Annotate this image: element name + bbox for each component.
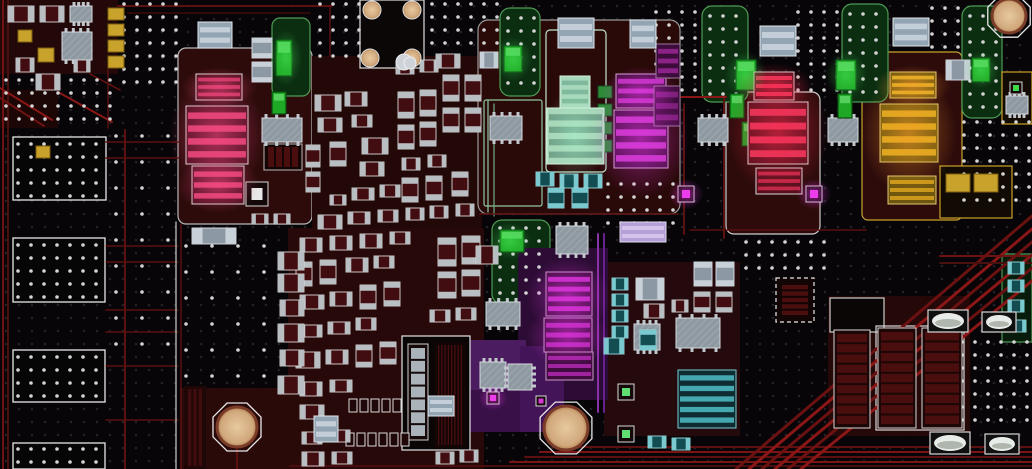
led-component[interactable] (1010, 82, 1022, 94)
via (56, 117, 60, 121)
chip-component[interactable] (380, 185, 400, 197)
hole-copper (217, 407, 257, 447)
chip-pad (274, 214, 278, 224)
via (658, 195, 662, 199)
chip-component[interactable] (330, 236, 352, 250)
chip-component[interactable] (356, 345, 372, 367)
via (809, 36, 813, 40)
via (140, 290, 144, 294)
teal-chip-component[interactable] (612, 294, 628, 306)
chip-component[interactable] (402, 158, 420, 170)
solder-pad (357, 433, 365, 446)
chip-component[interactable] (456, 308, 476, 320)
via (357, 28, 361, 32)
green-component[interactable] (272, 92, 286, 114)
via (986, 353, 990, 357)
via (968, 92, 972, 96)
chip-component[interactable] (74, 60, 90, 72)
led-component[interactable] (618, 384, 634, 400)
via (1014, 133, 1018, 137)
teal-chip-component[interactable] (548, 188, 564, 208)
pin-pad (461, 345, 462, 445)
chip-component[interactable] (462, 270, 480, 296)
chip-component[interactable] (378, 210, 398, 222)
via (809, 23, 813, 27)
pin-pad (925, 374, 959, 382)
chip-component[interactable] (278, 324, 304, 342)
solder-pad (371, 399, 379, 412)
via (443, 2, 447, 6)
teal-chip-component[interactable] (536, 172, 554, 186)
chip-component[interactable] (352, 188, 374, 200)
via (184, 270, 188, 274)
ic-component[interactable] (70, 2, 92, 26)
via (135, 41, 139, 45)
chip-component[interactable] (274, 214, 290, 224)
ic-component[interactable] (262, 114, 302, 146)
chip-pad (450, 452, 454, 464)
led-component[interactable] (536, 396, 546, 406)
chip-component[interactable] (348, 212, 370, 224)
chip-component[interactable] (362, 138, 388, 154)
via (135, 28, 139, 32)
via (680, 10, 684, 14)
chip-pad (328, 322, 333, 334)
inductor-component[interactable] (678, 370, 736, 428)
chip-pad (300, 405, 306, 419)
chip-pad (443, 126, 459, 132)
chip-pad (306, 145, 320, 150)
via (174, 67, 178, 71)
via (55, 155, 59, 159)
pin-pad (411, 425, 425, 436)
copper-pad[interactable] (363, 1, 381, 19)
via (210, 374, 214, 378)
via (1027, 120, 1031, 124)
chip-pad (300, 238, 305, 252)
chip-component[interactable] (302, 452, 324, 466)
chip-pad (474, 450, 478, 462)
pin-header-footprint[interactable] (184, 386, 206, 469)
chip-component[interactable] (320, 260, 336, 284)
via (29, 460, 33, 464)
pin-pad (881, 416, 913, 424)
chip-component[interactable] (330, 292, 352, 306)
via (236, 322, 240, 326)
ic-component[interactable] (556, 222, 588, 258)
via (55, 394, 59, 398)
chip-component[interactable] (318, 118, 342, 132)
test-point-pad[interactable] (928, 310, 968, 332)
via (708, 53, 712, 57)
solder-pad-yellow (18, 30, 32, 42)
ic-component[interactable] (504, 364, 536, 390)
chip-component[interactable] (428, 155, 446, 167)
via (357, 2, 361, 6)
chip-component[interactable] (426, 176, 442, 200)
pcb-layout-canvas[interactable] (0, 0, 1032, 469)
via (986, 392, 990, 396)
pin-pad (411, 348, 425, 359)
via (1014, 185, 1018, 189)
pin-header-footprint[interactable] (922, 328, 962, 428)
chip-pad (326, 350, 331, 364)
chip-pad (314, 352, 320, 368)
teal-chip-component[interactable] (612, 278, 628, 290)
via (184, 244, 188, 248)
chip-component[interactable] (438, 238, 456, 266)
via (30, 91, 34, 95)
chip-pad (389, 256, 394, 268)
via (114, 238, 118, 242)
chip-component[interactable] (330, 195, 346, 205)
chip-component[interactable] (452, 172, 468, 196)
inductor-component[interactable] (630, 20, 656, 48)
via (262, 322, 266, 326)
chip-component[interactable] (318, 215, 342, 229)
inductor-component[interactable] (198, 22, 232, 48)
chip-component[interactable] (332, 452, 352, 464)
chip-component[interactable] (278, 376, 304, 394)
via (184, 296, 188, 300)
copper-pad[interactable] (403, 1, 421, 19)
chip-component[interactable] (252, 214, 268, 224)
inductor-stripe (895, 24, 927, 30)
via (968, 14, 972, 18)
via (986, 405, 990, 409)
chip-pad (377, 234, 382, 248)
via (532, 42, 536, 46)
chip-pad (319, 452, 324, 466)
chip-component[interactable] (420, 90, 436, 116)
chip-component[interactable] (443, 108, 459, 132)
teal-chip-component[interactable] (672, 438, 690, 450)
led-component[interactable] (618, 426, 634, 442)
via (708, 92, 712, 96)
via (94, 394, 98, 398)
pin-pad (837, 365, 867, 373)
chip-component[interactable] (460, 450, 478, 462)
chip-pad (716, 262, 734, 268)
pin-header-footprint[interactable] (834, 330, 870, 428)
via (822, 49, 826, 53)
teal-chip-component[interactable] (572, 188, 588, 208)
solder-pad (379, 433, 387, 446)
chip-component[interactable] (280, 350, 304, 366)
via (667, 10, 671, 14)
pin-pad (411, 387, 425, 398)
pin-pad (881, 342, 913, 350)
chip-component[interactable] (306, 145, 320, 167)
via (1012, 418, 1016, 422)
chip-component[interactable] (315, 95, 341, 111)
via (140, 264, 144, 268)
chip-component[interactable] (306, 172, 320, 192)
chip-component[interactable] (278, 274, 304, 292)
chip-component[interactable] (345, 92, 367, 106)
chip-pad (1008, 300, 1012, 312)
inductor-stripe (680, 375, 734, 380)
led-die (622, 388, 630, 396)
via (537, 239, 541, 243)
inductor-stripe (560, 24, 592, 30)
glow-overlay (270, 30, 302, 86)
via (318, 54, 322, 58)
via (693, 49, 697, 53)
teal-chip-component[interactable] (648, 436, 666, 448)
mounting-hole[interactable] (540, 402, 592, 454)
chip-component[interactable] (356, 318, 376, 330)
via (236, 296, 240, 300)
copper-pad[interactable] (361, 49, 379, 67)
ic-hatch (70, 6, 92, 22)
chip-component[interactable] (420, 60, 438, 72)
test-point-pad[interactable] (982, 312, 1016, 332)
mounting-hole[interactable] (988, 0, 1030, 37)
chip-component[interactable] (694, 292, 710, 312)
via (981, 27, 985, 31)
chip-component[interactable] (328, 322, 350, 334)
via (822, 36, 826, 40)
pin-pad (925, 384, 959, 392)
chip-component[interactable] (374, 256, 394, 268)
via (210, 322, 214, 326)
teal-chip-component[interactable] (1008, 280, 1024, 292)
chip-component[interactable] (436, 54, 460, 68)
capacitor-component[interactable] (192, 228, 236, 244)
via (537, 252, 541, 256)
chip-component[interactable] (8, 6, 34, 22)
test-point-pad[interactable] (930, 432, 970, 454)
chip-pad (657, 278, 664, 300)
pin-header-footprint[interactable] (779, 281, 811, 319)
chip-component[interactable] (384, 282, 400, 306)
ic-component[interactable] (676, 314, 720, 352)
chip-component[interactable] (398, 125, 414, 149)
via (29, 381, 33, 385)
chip-component[interactable] (402, 178, 418, 202)
chip-component[interactable] (360, 162, 384, 176)
pin-header-footprint[interactable] (878, 328, 916, 428)
via (1027, 159, 1031, 163)
via (331, 2, 335, 6)
chip-component[interactable] (398, 92, 414, 118)
chip-pad (612, 278, 616, 290)
inductor-component[interactable] (893, 18, 929, 46)
inductor-stripe (316, 432, 336, 437)
chip-component[interactable] (456, 204, 474, 216)
via (822, 23, 826, 27)
chip-component[interactable] (430, 206, 448, 218)
via (498, 265, 502, 269)
test-point-pad[interactable] (985, 434, 1019, 454)
via (962, 133, 966, 137)
chip-pad (420, 140, 436, 146)
chip-pad (1022, 320, 1026, 332)
ic-component[interactable] (698, 114, 728, 146)
via (930, 32, 934, 36)
via (734, 27, 738, 31)
chip-component[interactable] (465, 108, 481, 132)
via (973, 353, 977, 357)
glow-overlay (181, 67, 258, 106)
chip-pad (378, 162, 384, 176)
capacitor-component[interactable] (716, 262, 734, 286)
teal-chip-component[interactable] (1008, 300, 1024, 312)
ic-component[interactable] (486, 298, 520, 330)
via (981, 105, 985, 109)
chip-component[interactable] (40, 6, 64, 22)
inductor-body (314, 416, 338, 442)
teal-chip-component[interactable] (1008, 262, 1024, 274)
via (161, 28, 165, 32)
pin-header-footprint[interactable] (408, 344, 428, 440)
ic-component[interactable] (490, 112, 522, 144)
chip-component[interactable] (16, 58, 34, 72)
chip-pad (636, 278, 643, 300)
teal-chip-component[interactable] (640, 330, 656, 350)
chip-component[interactable] (406, 208, 424, 220)
via (956, 6, 960, 10)
capacitor-component[interactable] (252, 62, 272, 82)
chip-component[interactable] (465, 75, 481, 101)
via (184, 374, 188, 378)
via (999, 418, 1003, 422)
inductor-component[interactable] (620, 222, 666, 242)
via (29, 269, 33, 273)
via (55, 381, 59, 385)
teal-chip-component[interactable] (612, 310, 628, 322)
chip-component[interactable] (300, 238, 322, 252)
chip-component[interactable] (672, 300, 688, 312)
chip-component[interactable] (644, 304, 664, 318)
chip-pad (430, 310, 435, 322)
via (1027, 133, 1031, 137)
chip-component[interactable] (36, 74, 60, 90)
chip-component[interactable] (352, 115, 372, 127)
via (29, 194, 33, 198)
via (796, 253, 800, 257)
via (744, 240, 748, 244)
ic-hatch (486, 302, 520, 326)
via (42, 447, 46, 451)
chip-component[interactable] (326, 350, 348, 364)
capacitor-component[interactable] (252, 38, 272, 58)
via (331, 28, 335, 32)
chip-pad (346, 258, 351, 272)
chip-component[interactable] (330, 142, 346, 166)
glow-overlay (494, 37, 532, 82)
chip-pad (345, 430, 350, 442)
via (69, 117, 73, 121)
via (344, 15, 348, 19)
chip-pad (462, 270, 480, 276)
via (95, 117, 99, 121)
capacitor-component[interactable] (636, 278, 664, 300)
chip-pad (278, 376, 284, 394)
chip-pad (548, 188, 564, 193)
chip-component[interactable] (390, 232, 410, 244)
chip-component[interactable] (346, 258, 368, 272)
chip-component[interactable] (436, 452, 454, 464)
pin-pad (881, 374, 913, 382)
pin-header-footprint[interactable] (264, 144, 302, 170)
chip-pad (36, 74, 42, 90)
via (30, 78, 34, 82)
chip-pad (330, 292, 335, 306)
via (81, 355, 85, 359)
via (482, 41, 486, 45)
via (430, 2, 434, 6)
pin-header-footprint[interactable] (434, 342, 466, 448)
chip-pad (345, 92, 350, 106)
via (835, 49, 839, 53)
via (81, 447, 85, 451)
chip-component[interactable] (438, 272, 456, 298)
chip-component[interactable] (278, 252, 304, 270)
chip-pad (420, 90, 436, 96)
mounting-hole[interactable] (213, 403, 261, 451)
chip-component[interactable] (280, 300, 304, 316)
inductor-component[interactable] (558, 18, 594, 48)
glow-overlay (668, 179, 703, 210)
via (1012, 405, 1016, 409)
via (968, 105, 972, 109)
via (835, 36, 839, 40)
inductor-component[interactable] (760, 26, 796, 56)
chip-pad (470, 204, 474, 216)
via (721, 53, 725, 57)
chip-component[interactable] (360, 285, 376, 309)
chip-pad (360, 285, 376, 291)
chip-component[interactable] (443, 75, 459, 101)
chip-component[interactable] (716, 292, 732, 312)
chip-pad (456, 308, 461, 320)
inductor-component[interactable] (428, 396, 454, 416)
chip-pad (335, 95, 341, 111)
chip-component[interactable] (430, 310, 450, 322)
chip-component[interactable] (420, 122, 436, 146)
via (29, 142, 33, 146)
capacitor-component[interactable] (694, 262, 712, 286)
chip-pad (1020, 262, 1024, 274)
via (456, 41, 460, 45)
chip-pad (465, 108, 481, 114)
inductor-component[interactable] (314, 416, 338, 442)
via (161, 54, 165, 58)
teal-chip-component[interactable] (612, 326, 628, 338)
via (262, 348, 266, 352)
pin-pad (925, 363, 959, 371)
chip-pad (362, 138, 368, 154)
chip-pad (1008, 280, 1012, 292)
chip-component[interactable] (380, 342, 396, 364)
via (874, 25, 878, 29)
via (68, 394, 72, 398)
chip-component[interactable] (360, 234, 382, 248)
chip-pad (442, 155, 446, 167)
ic-component[interactable] (828, 114, 858, 146)
chip-pad (393, 210, 398, 222)
pin-pad (276, 147, 282, 167)
via (962, 198, 966, 202)
ic-component[interactable] (62, 28, 92, 64)
via (1025, 405, 1029, 409)
via (81, 142, 85, 146)
ic-component[interactable] (1006, 92, 1028, 118)
chip-component[interactable] (330, 380, 352, 392)
chip-pad (317, 382, 322, 396)
